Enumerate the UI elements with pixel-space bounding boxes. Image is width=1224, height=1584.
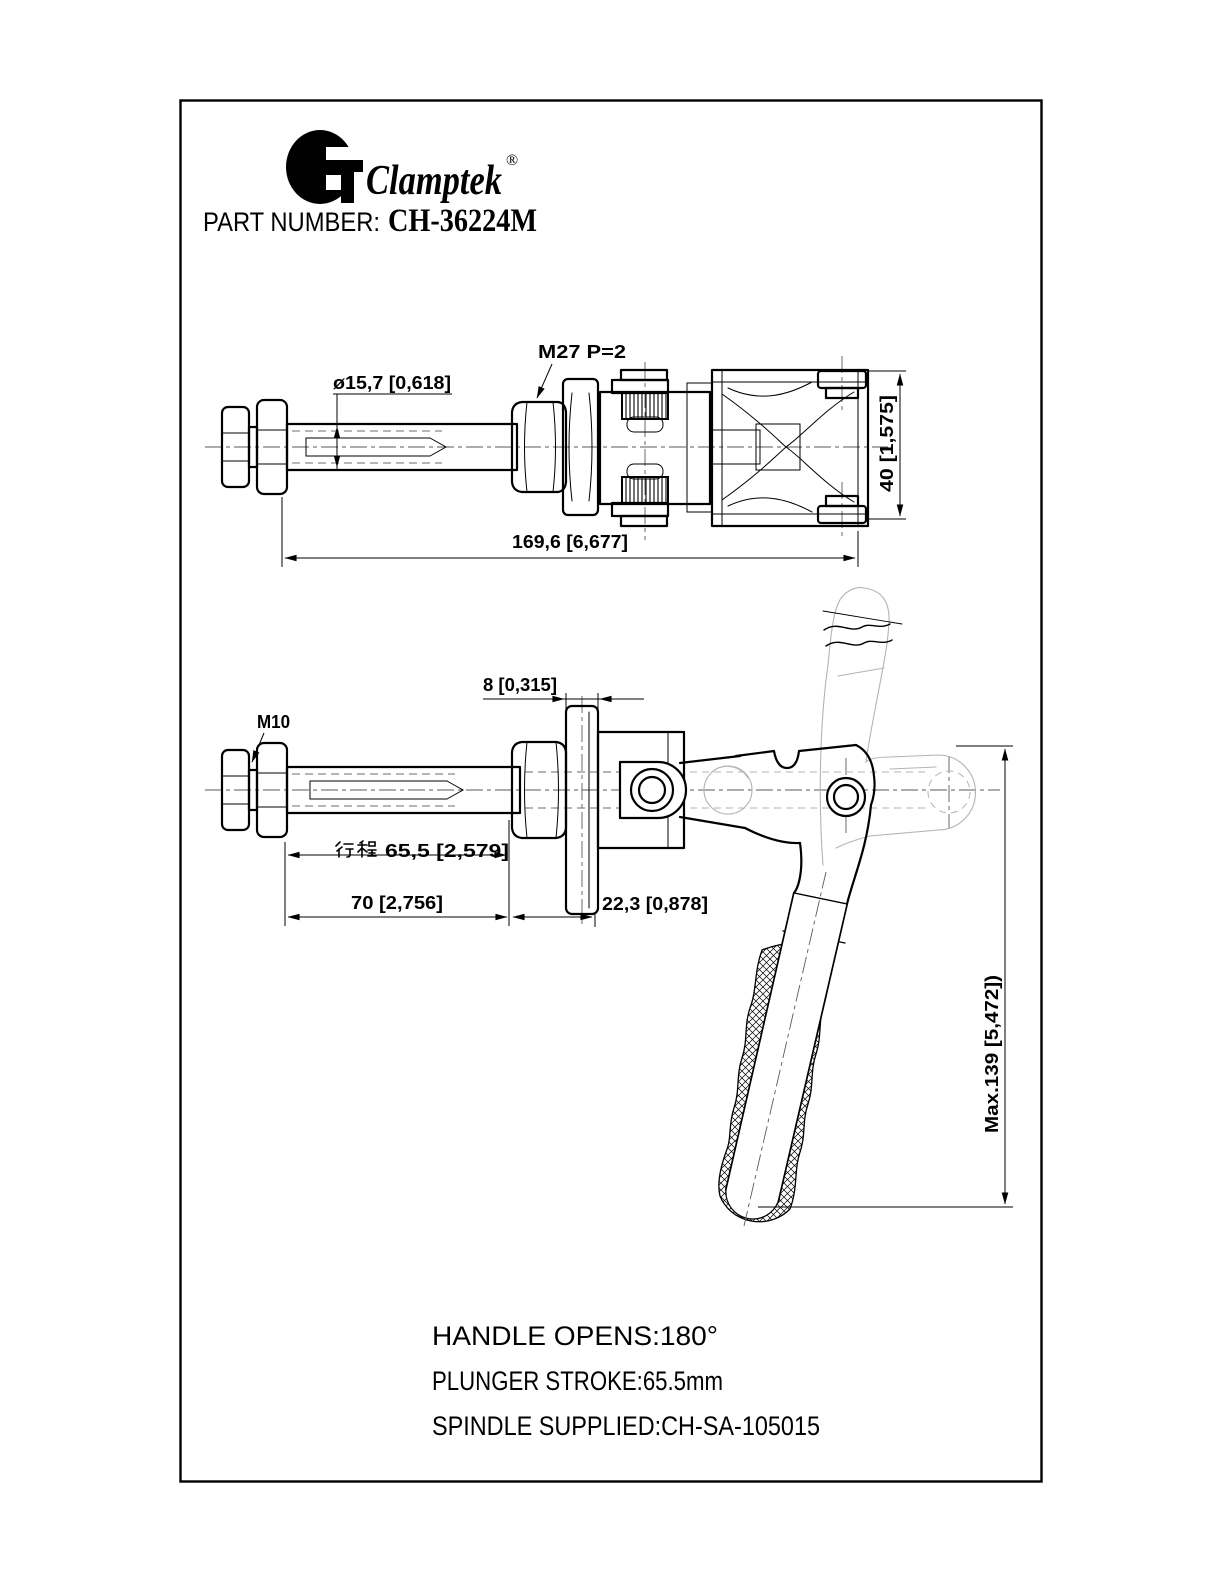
drawing-page: Clamptek ® PART NUMBER: CH-36224M bbox=[0, 0, 1224, 1584]
svg-text:65,5 [2,579]: 65,5 [2,579] bbox=[385, 841, 509, 861]
technical-drawing: Clamptek ® PART NUMBER: CH-36224M bbox=[0, 0, 1224, 1584]
svg-text:70 [2,756]: 70 [2,756] bbox=[351, 893, 443, 913]
svg-text:M10: M10 bbox=[257, 712, 290, 732]
svg-text:22,3 [0,878]: 22,3 [0,878] bbox=[602, 894, 708, 914]
registered-mark: ® bbox=[506, 152, 518, 169]
spec-plunger-stroke: PLUNGER STROKE:65.5mm bbox=[432, 1366, 723, 1396]
brand-name: Clamptek bbox=[366, 158, 502, 204]
part-number-label: PART NUMBER: bbox=[203, 207, 380, 237]
svg-text:8 [0,315]: 8 [0,315] bbox=[483, 675, 557, 695]
part-number-value: CH-36224M bbox=[388, 203, 537, 239]
svg-text:ø15,7 [0,618]: ø15,7 [0,618] bbox=[333, 373, 451, 393]
svg-text:Max.139 [5,472]): Max.139 [5,472]) bbox=[982, 975, 1002, 1133]
svg-text:M27 P=2: M27 P=2 bbox=[538, 342, 626, 362]
svg-text:169,6 [6,677]: 169,6 [6,677] bbox=[512, 532, 628, 552]
part-number-block: PART NUMBER: CH-36224M bbox=[203, 203, 537, 239]
spec-spindle-supplied: SPINDLE SUPPLIED:CH-SA-105015 bbox=[432, 1411, 820, 1441]
svg-text:40 [1,575]: 40 [1,575] bbox=[877, 395, 897, 492]
spec-handle-opens: HANDLE OPENS:180° bbox=[432, 1321, 718, 1351]
